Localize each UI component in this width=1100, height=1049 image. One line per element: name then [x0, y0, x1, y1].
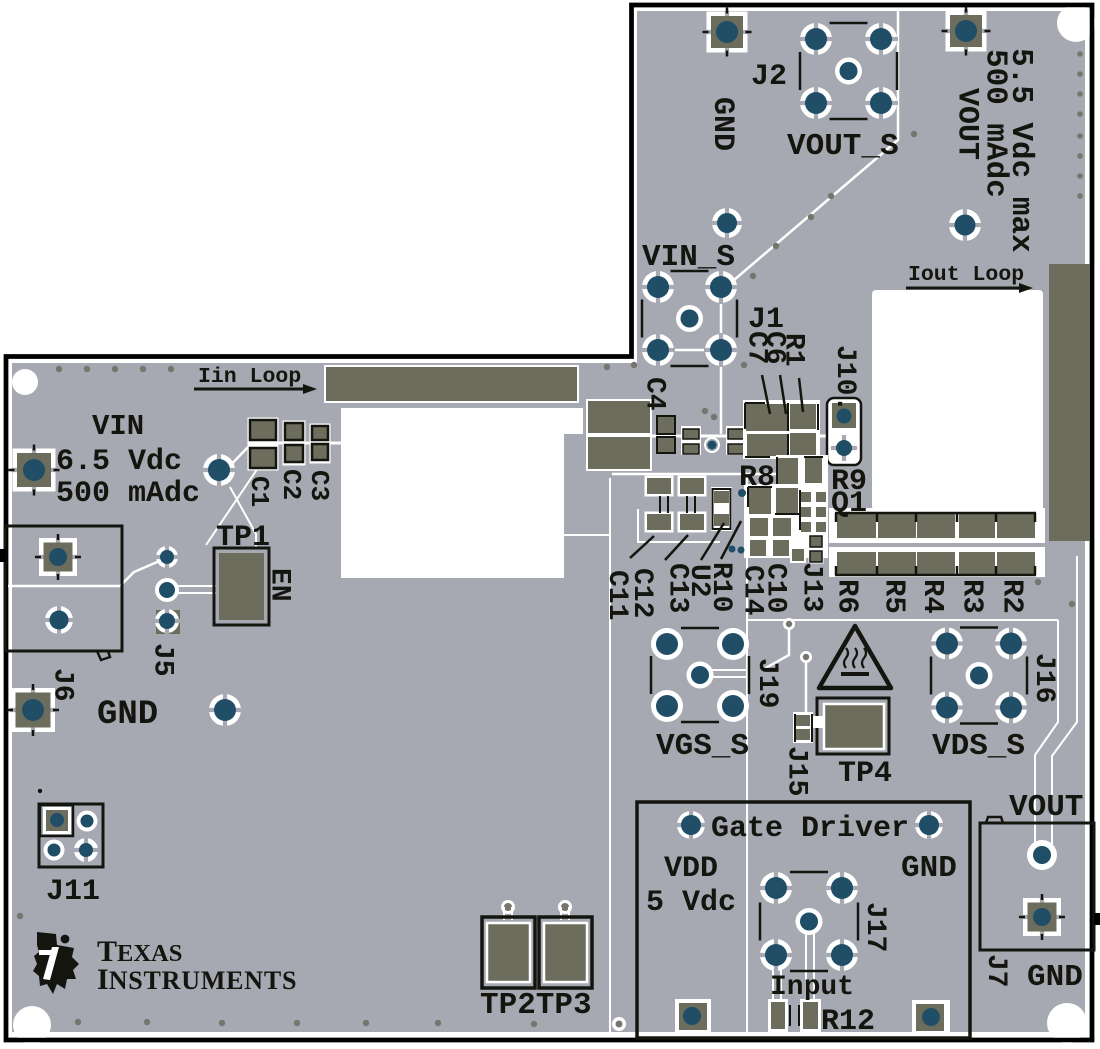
svg-text:J2: J2 — [751, 60, 787, 94]
svg-text:VDD: VDD — [664, 852, 718, 886]
svg-text:J10.: J10. — [829, 345, 860, 412]
svg-text:J13: J13 — [796, 562, 827, 612]
svg-text:500 mAdc: 500 mAdc — [56, 477, 200, 511]
svg-text:Gate Driver: Gate Driver — [711, 812, 909, 846]
svg-text:R4: R4 — [916, 579, 949, 614]
svg-text:TEXAS: TEXAS — [97, 935, 182, 968]
svg-text:VOUT_S: VOUT_S — [787, 129, 899, 164]
svg-text:6.5 Vdc: 6.5 Vdc — [56, 445, 182, 479]
svg-text:C2: C2 — [276, 469, 306, 500]
svg-text:Q1: Q1 — [831, 487, 867, 521]
svg-text:C10: C10 — [760, 563, 791, 613]
svg-text:TP4: TP4 — [838, 757, 892, 791]
svg-text:TP1: TP1 — [216, 521, 270, 555]
svg-text:EN: EN — [264, 568, 295, 602]
svg-text:J6: J6 — [47, 668, 78, 702]
svg-text:GND: GND — [705, 97, 739, 151]
svg-text:J19: J19 — [751, 658, 782, 708]
svg-text:TP2TP3: TP2TP3 — [480, 988, 592, 1023]
svg-text:Input: Input — [770, 972, 854, 1003]
svg-text:Iout Loop: Iout Loop — [908, 263, 1024, 287]
svg-text:R10: R10 — [705, 562, 736, 612]
svg-text:R3: R3 — [956, 579, 989, 614]
svg-text:R2: R2 — [996, 579, 1029, 614]
svg-text:J16: J16 — [1028, 653, 1059, 703]
svg-text:J11: J11 — [46, 875, 100, 909]
svg-text:VOUT: VOUT — [950, 88, 984, 160]
svg-text:J5: J5 — [147, 643, 178, 677]
svg-text:GND: GND — [901, 851, 957, 886]
svg-text:J15: J15 — [781, 746, 812, 796]
svg-text:R5: R5 — [878, 579, 911, 614]
svg-text:R6: R6 — [831, 579, 864, 614]
svg-text:C4: C4 — [639, 377, 670, 411]
svg-text:INSTRUMENTS: INSTRUMENTS — [97, 963, 297, 996]
svg-text:Iin Loop: Iin Loop — [198, 365, 301, 389]
svg-text:R12: R12 — [821, 1005, 875, 1039]
svg-text:GND: GND — [97, 696, 158, 734]
svg-text:J17: J17 — [859, 902, 890, 952]
svg-text:VOUT: VOUT — [1009, 790, 1083, 825]
svg-text:5 Vdc: 5 Vdc — [646, 886, 736, 920]
svg-text:J7: J7 — [980, 954, 1011, 988]
svg-text:VIN_S: VIN_S — [642, 240, 735, 275]
svg-text:C3: C3 — [304, 470, 334, 501]
svg-text:R8: R8 — [739, 461, 775, 495]
svg-text:C1: C1 — [244, 476, 274, 507]
svg-text:VDS_S: VDS_S — [932, 729, 1025, 764]
svg-text:C12: C12 — [626, 568, 657, 618]
svg-text:VIN: VIN — [92, 410, 144, 443]
svg-text:R1: R1 — [778, 333, 809, 367]
svg-text:GND: GND — [1027, 960, 1083, 995]
svg-text:VGS_S: VGS_S — [656, 729, 749, 764]
